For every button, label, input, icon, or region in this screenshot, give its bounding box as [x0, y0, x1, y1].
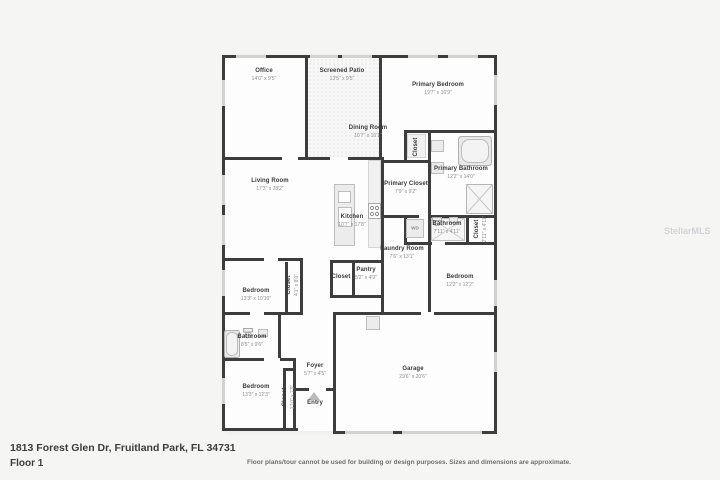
room-label-bathroom-left: Bathroom 8'5" x 9'6" — [237, 334, 266, 348]
wall — [264, 312, 303, 315]
wall — [379, 215, 419, 218]
window-marker — [222, 175, 225, 205]
wall — [222, 428, 298, 431]
floorplan-page: { "footer": { "address": "1813 Forest Gl… — [0, 0, 720, 480]
room-label-closet-bedroom-left: Closet 4'1" x 8'0" — [286, 274, 300, 296]
window-marker — [222, 378, 225, 404]
entry-arrow-icon — [308, 392, 320, 400]
washer-dryer-label: WD — [411, 226, 419, 231]
room-label-closet-foyer: Closet 1'10" x 7'9" — [282, 385, 296, 410]
window-marker — [448, 55, 478, 58]
window-marker — [494, 352, 497, 372]
room-label-pantry: Pantry 5'2" x 4'9" — [355, 267, 377, 281]
room-label-bedroom-bottom-left: Bedroom 13'3" x 12'3" — [242, 384, 269, 398]
stellar-mls-watermark: StellarMLS — [664, 226, 711, 236]
window-marker — [494, 280, 497, 306]
stove-icon — [368, 203, 381, 219]
room-label-laundry-room: Laundry Room 7'6" x 13'1" — [380, 246, 424, 260]
room-label-primary-closet: Primary Closet 7'9" x 9'2" — [384, 181, 428, 195]
floorplan-drawing: WD Office 14'0" x 9'5" Screened Patio 13… — [0, 0, 720, 480]
disclaimer-text: Floor plans/tour cannot be used for buil… — [247, 459, 571, 466]
wall — [333, 312, 421, 315]
room-label-primary-bathroom: Primary Bathroom 12'2" x 14'0" — [434, 166, 488, 180]
window-marker — [222, 270, 225, 296]
wall — [305, 55, 308, 160]
wall — [222, 358, 264, 361]
room-label-primary-bedroom: Primary Bedroom 19'7" x 16'9" — [412, 82, 464, 96]
window-marker — [342, 55, 372, 58]
garage-door-marker — [402, 431, 482, 434]
window-marker — [310, 55, 338, 58]
room-label-garage: Garage 29'6" x 20'6" — [399, 366, 426, 380]
room-label-closet-small: Closet — [332, 274, 351, 282]
sink-icon — [431, 140, 444, 152]
wall — [466, 215, 469, 245]
wall — [278, 315, 281, 358]
wall — [379, 55, 382, 160]
wall — [222, 157, 282, 160]
wall — [330, 295, 383, 298]
oven-icon — [338, 191, 351, 203]
room-label-bedroom-middle-left: Bedroom 13'3" x 10'10" — [241, 288, 271, 302]
room-label-closet-right: Closet 2'11" x 4'11" — [474, 216, 488, 243]
floor-label: Floor 1 — [10, 458, 43, 469]
window-marker — [236, 55, 266, 58]
address-text: 1813 Forest Glen Dr, Fruitland Park, FL … — [10, 442, 236, 454]
water-heater-icon — [366, 316, 380, 330]
room-label-screened-patio: Screened Patio 13'5" x 9'5" — [320, 68, 365, 82]
wall — [445, 242, 497, 245]
wall — [428, 245, 431, 312]
wall — [330, 260, 383, 263]
room-label-entry: Entry — [307, 400, 323, 408]
room-label-bathroom-middle: Bathroom 7'11" x 4'11" — [432, 221, 461, 235]
window-marker — [494, 75, 497, 105]
room-label-bedroom-right: Bedroom 12'2" x 12'2" — [446, 274, 473, 288]
wall — [283, 368, 296, 371]
wall — [404, 130, 497, 133]
wall — [434, 312, 497, 315]
wall — [222, 312, 250, 315]
wall — [333, 312, 336, 431]
room-label-hall-closet: Closet — [413, 138, 421, 157]
wall — [222, 258, 264, 261]
room-label-foyer: Foyer 5'7" x 4'5" — [304, 363, 326, 377]
wall — [298, 157, 330, 160]
garage-door-marker — [345, 431, 393, 434]
wall — [404, 160, 431, 163]
window-marker — [222, 215, 225, 245]
bathtub-icon — [458, 136, 492, 166]
room-label-living-room: Living Room 17'3" x 28'2" — [251, 178, 288, 192]
wall — [326, 388, 336, 391]
room-label-office: Office 14'0" x 9'5" — [252, 68, 277, 82]
window-marker — [222, 80, 225, 106]
room-label-dining-room: Dining Room 10'7" x 10'1" — [349, 125, 387, 139]
wall — [381, 157, 384, 245]
room-label-kitchen: Kitchen 10'7" x 17'8" — [338, 214, 365, 228]
wall — [300, 258, 303, 315]
shower-icon — [466, 184, 493, 214]
window-marker — [408, 55, 438, 58]
